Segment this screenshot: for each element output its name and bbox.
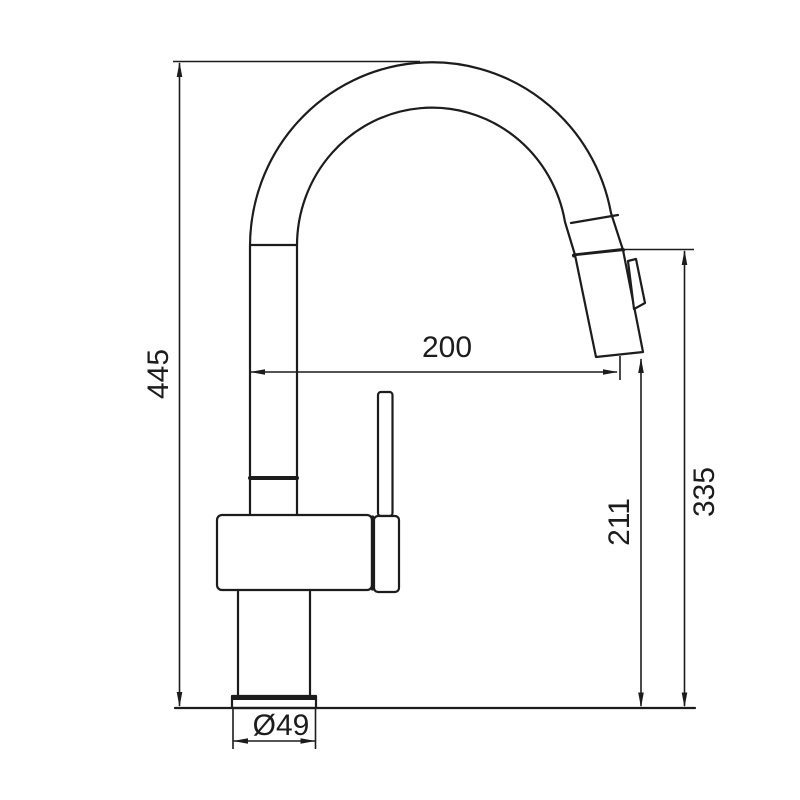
outlet-height-label: 211: [603, 498, 636, 546]
spout-height-arrow-up: [682, 250, 688, 265]
base-diameter-arrow-left: [233, 738, 248, 744]
handle-lever: [378, 392, 393, 516]
base-diameter-label: Ø49: [253, 709, 310, 742]
outlet-height-arrow-up: [638, 358, 644, 373]
spray-head-band-top-line: [571, 215, 618, 223]
faucet-technical-drawing: 445 200 211 335 Ø49: [0, 0, 800, 800]
faucet-body: [217, 515, 372, 590]
spout-height-label: 335: [688, 467, 721, 517]
overall-height-arrow-up: [177, 62, 183, 77]
drawing-canvas: 445 200 211 335 Ø49: [0, 0, 800, 800]
overall-height-label: 445: [142, 349, 175, 399]
spout-reach-arrow-right: [603, 369, 618, 375]
spout-height-arrow-down: [682, 693, 688, 708]
spout-reach-arrow-left: [250, 369, 265, 375]
outlet-height-arrow-down: [638, 693, 644, 708]
spout-outer-profile: [250, 62, 623, 516]
handle-base: [374, 516, 399, 592]
spout-reach-label: 200: [422, 331, 472, 364]
spout-inner-profile: [297, 108, 575, 516]
overall-height-arrow-down: [177, 692, 183, 707]
